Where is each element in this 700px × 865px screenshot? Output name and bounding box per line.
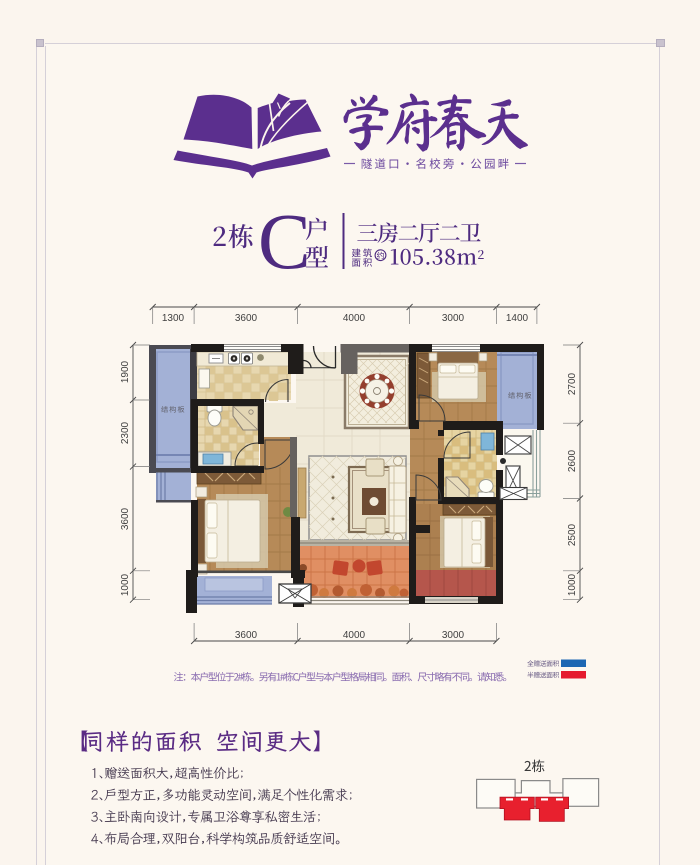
svg-text:2700: 2700 [567,372,578,395]
svg-text:1000: 1000 [567,573,578,596]
svg-text:3000: 3000 [442,313,465,324]
svg-text:2600: 2600 [567,449,578,472]
svg-text:4000: 4000 [343,313,366,324]
svg-text:C: C [258,199,311,286]
svg-text:1400: 1400 [506,313,529,324]
svg-text:3600: 3600 [120,507,131,530]
svg-text:3600: 3600 [235,313,258,324]
svg-text:1000: 1000 [120,573,131,596]
svg-text:3000: 3000 [442,630,465,641]
svg-text:2500: 2500 [567,523,578,546]
svg-text:2300: 2300 [120,421,131,444]
svg-text:4000: 4000 [343,630,366,641]
svg-text:1300: 1300 [162,313,185,324]
svg-text:1900: 1900 [120,360,131,383]
svg-text:3600: 3600 [235,630,258,641]
